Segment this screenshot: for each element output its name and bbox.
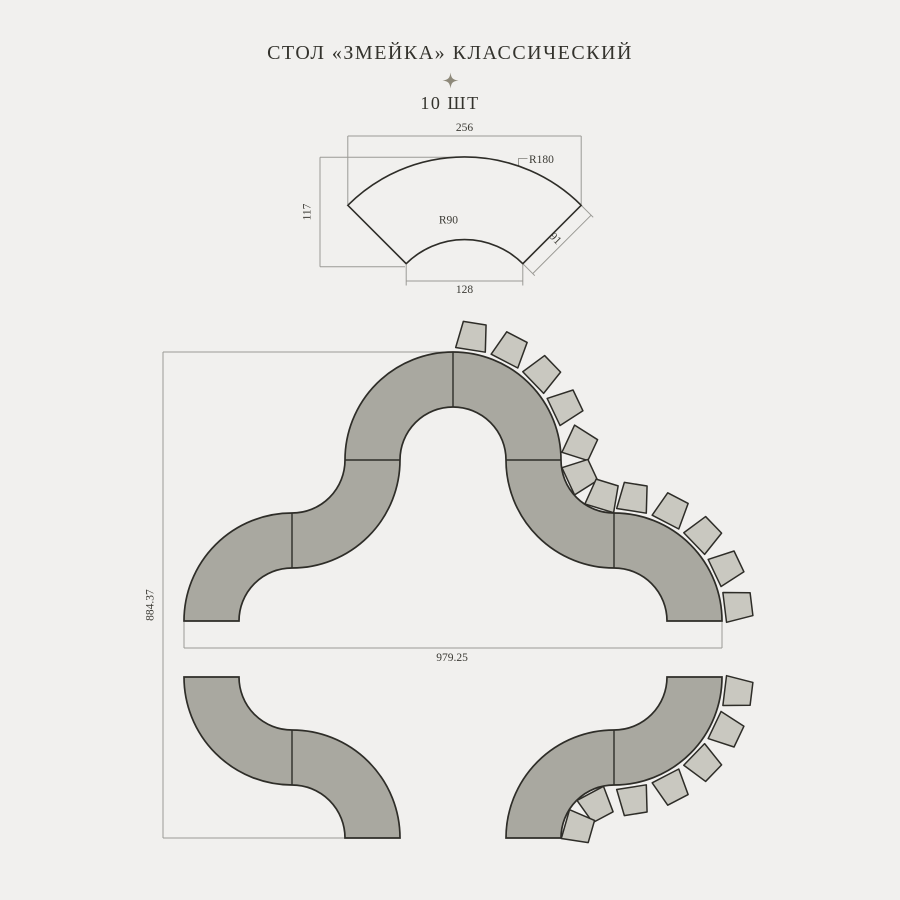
leader-outer-radius — [519, 159, 528, 167]
page-title: СТОЛ «ЗМЕЙКА» КЛАССИЧЕСКИЙ — [0, 0, 900, 65]
title-block: СТОЛ «ЗМЕЙКА» КЛАССИЧЕСКИЙ 10 ШТ — [0, 0, 900, 114]
table-segment-outline — [348, 157, 581, 264]
chair — [617, 785, 651, 816]
sparkle-icon-glyph — [442, 72, 458, 88]
dim-ext-line — [581, 205, 593, 217]
dim-label-outer-width: 256 — [456, 122, 474, 134]
part-drawing: 256 117 R180 R90 91 128 — [302, 122, 594, 296]
dim-label-inner-width: 128 — [456, 284, 474, 296]
blueprint-page: СТОЛ «ЗМЕЙКА» КЛАССИЧЕСКИЙ 10 ШТ — [0, 0, 900, 900]
chair — [723, 589, 753, 622]
assembly-plan: 884.37 979.25 — [145, 321, 754, 846]
dim-label-total-height: 884.37 — [145, 589, 157, 621]
sparkle-icon — [442, 72, 459, 89]
dim-ext-line — [523, 264, 535, 276]
quantity-label: 10 ШТ — [0, 93, 900, 114]
dim-label-left-height: 117 — [302, 203, 314, 220]
dim-label-outer-radius: R180 — [529, 154, 554, 166]
technical-drawing: 256 117 R180 R90 91 128 — [0, 0, 900, 900]
dim-label-inner-radius: R90 — [439, 215, 458, 227]
dim-label-top-width: 979.25 — [436, 652, 468, 664]
chair — [723, 676, 753, 709]
chair — [456, 321, 490, 352]
chair — [562, 425, 599, 464]
chair — [617, 482, 651, 513]
